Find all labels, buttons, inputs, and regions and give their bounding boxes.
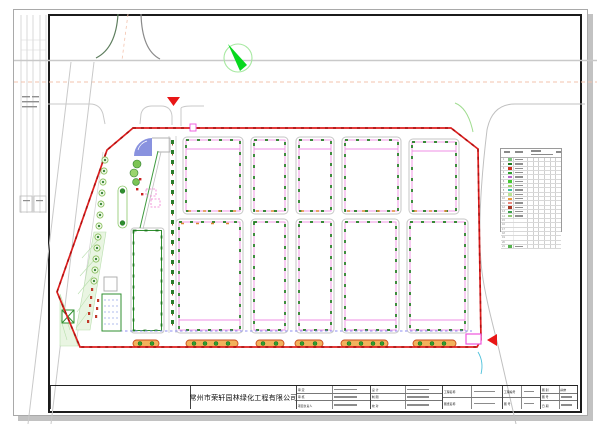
field-label: 审 定 [297, 387, 328, 392]
building [251, 219, 288, 333]
field-label: 审 核 [297, 395, 328, 400]
building [409, 139, 459, 214]
building [407, 219, 468, 333]
entrance-water-feature [118, 138, 170, 229]
approval-fields: 审 定 审 核 项目负责人 [296, 386, 370, 409]
field-label: 设 计 [371, 387, 401, 392]
entrance-marker-top [167, 97, 180, 106]
plant-symbol [506, 163, 513, 165]
plant-schedule-header [501, 149, 561, 158]
plant-symbol [506, 219, 513, 221]
plant-symbol [506, 245, 513, 247]
plant-symbol [506, 180, 513, 182]
plant-symbol [506, 189, 513, 191]
field-label: 日 期 [541, 403, 557, 408]
plant-symbol [506, 228, 513, 230]
field-label: 图纸名称 [443, 401, 468, 406]
field-label: 制 图 [371, 395, 401, 400]
plant-schedule-table: 123456789101112131415161718192021 [500, 148, 562, 232]
plant-symbol [506, 185, 513, 187]
plant-symbol [506, 176, 513, 178]
island-trees [138, 342, 446, 346]
plant-symbol [506, 158, 513, 160]
plant-symbol [506, 167, 513, 169]
north-arrow-icon [224, 44, 252, 72]
plant-symbol [506, 172, 513, 174]
project-name-fields: 工程名称 图纸名称 [442, 386, 502, 409]
field-label: 工程编号 [503, 389, 519, 394]
plant-symbol [506, 193, 513, 195]
building [176, 219, 243, 333]
field-label: 图 别 [541, 387, 557, 392]
title-block-empty-cell [50, 386, 190, 409]
plant-symbol [506, 215, 513, 217]
plant-symbol [506, 237, 513, 239]
design-fields: 设 计 制 图 校 对 [370, 386, 442, 409]
sheet-fields: 图 别园施 图 号 日 期 [540, 386, 578, 409]
field-value: 园施 [560, 387, 566, 392]
left-margin-road-strip [20, 15, 46, 213]
legend-rows: 123456789101112131415161718192021 [501, 158, 561, 249]
parking-islands [133, 340, 456, 347]
plant-symbol [506, 224, 513, 226]
plant-symbol [506, 232, 513, 234]
entrance-marker-right [487, 334, 497, 346]
company-name-cell: 常州市荣轩园林绿化工程有限公司 [190, 386, 296, 409]
building [131, 228, 164, 333]
plant-symbol [506, 211, 513, 213]
central-planting-strip [169, 136, 176, 333]
plant-symbol [506, 206, 513, 208]
building [342, 219, 399, 333]
field-label: 图 号 [541, 395, 557, 400]
plant-symbol [506, 198, 513, 200]
drawing-canvas: 123456789101112131415161718192021 常州市荣轩园… [0, 0, 600, 424]
buildings-row-2 [131, 219, 468, 333]
building [342, 137, 401, 214]
legend-row: 21 [501, 245, 561, 249]
ancillary-buildings [102, 277, 121, 331]
buildings-row-1 [183, 137, 459, 214]
building [296, 137, 334, 214]
building [251, 137, 288, 214]
plant-symbol [506, 202, 513, 204]
field-label: 工程名称 [443, 389, 468, 394]
plant-symbol [506, 241, 513, 243]
building [296, 219, 334, 333]
title-block: 常州市荣轩园林绿化工程有限公司 审 定 审 核 项目负责人 设 计 制 图 校 … [50, 385, 578, 408]
building [183, 137, 243, 214]
company-name: 常州市荣轩园林绿化工程有限公司 [190, 393, 298, 403]
field-label: 图 号 [503, 401, 519, 406]
field-label: 校 对 [371, 403, 401, 408]
project-number-fields: 工程编号 图 号 [502, 386, 540, 409]
field-label: 项目负责人 [297, 403, 328, 408]
